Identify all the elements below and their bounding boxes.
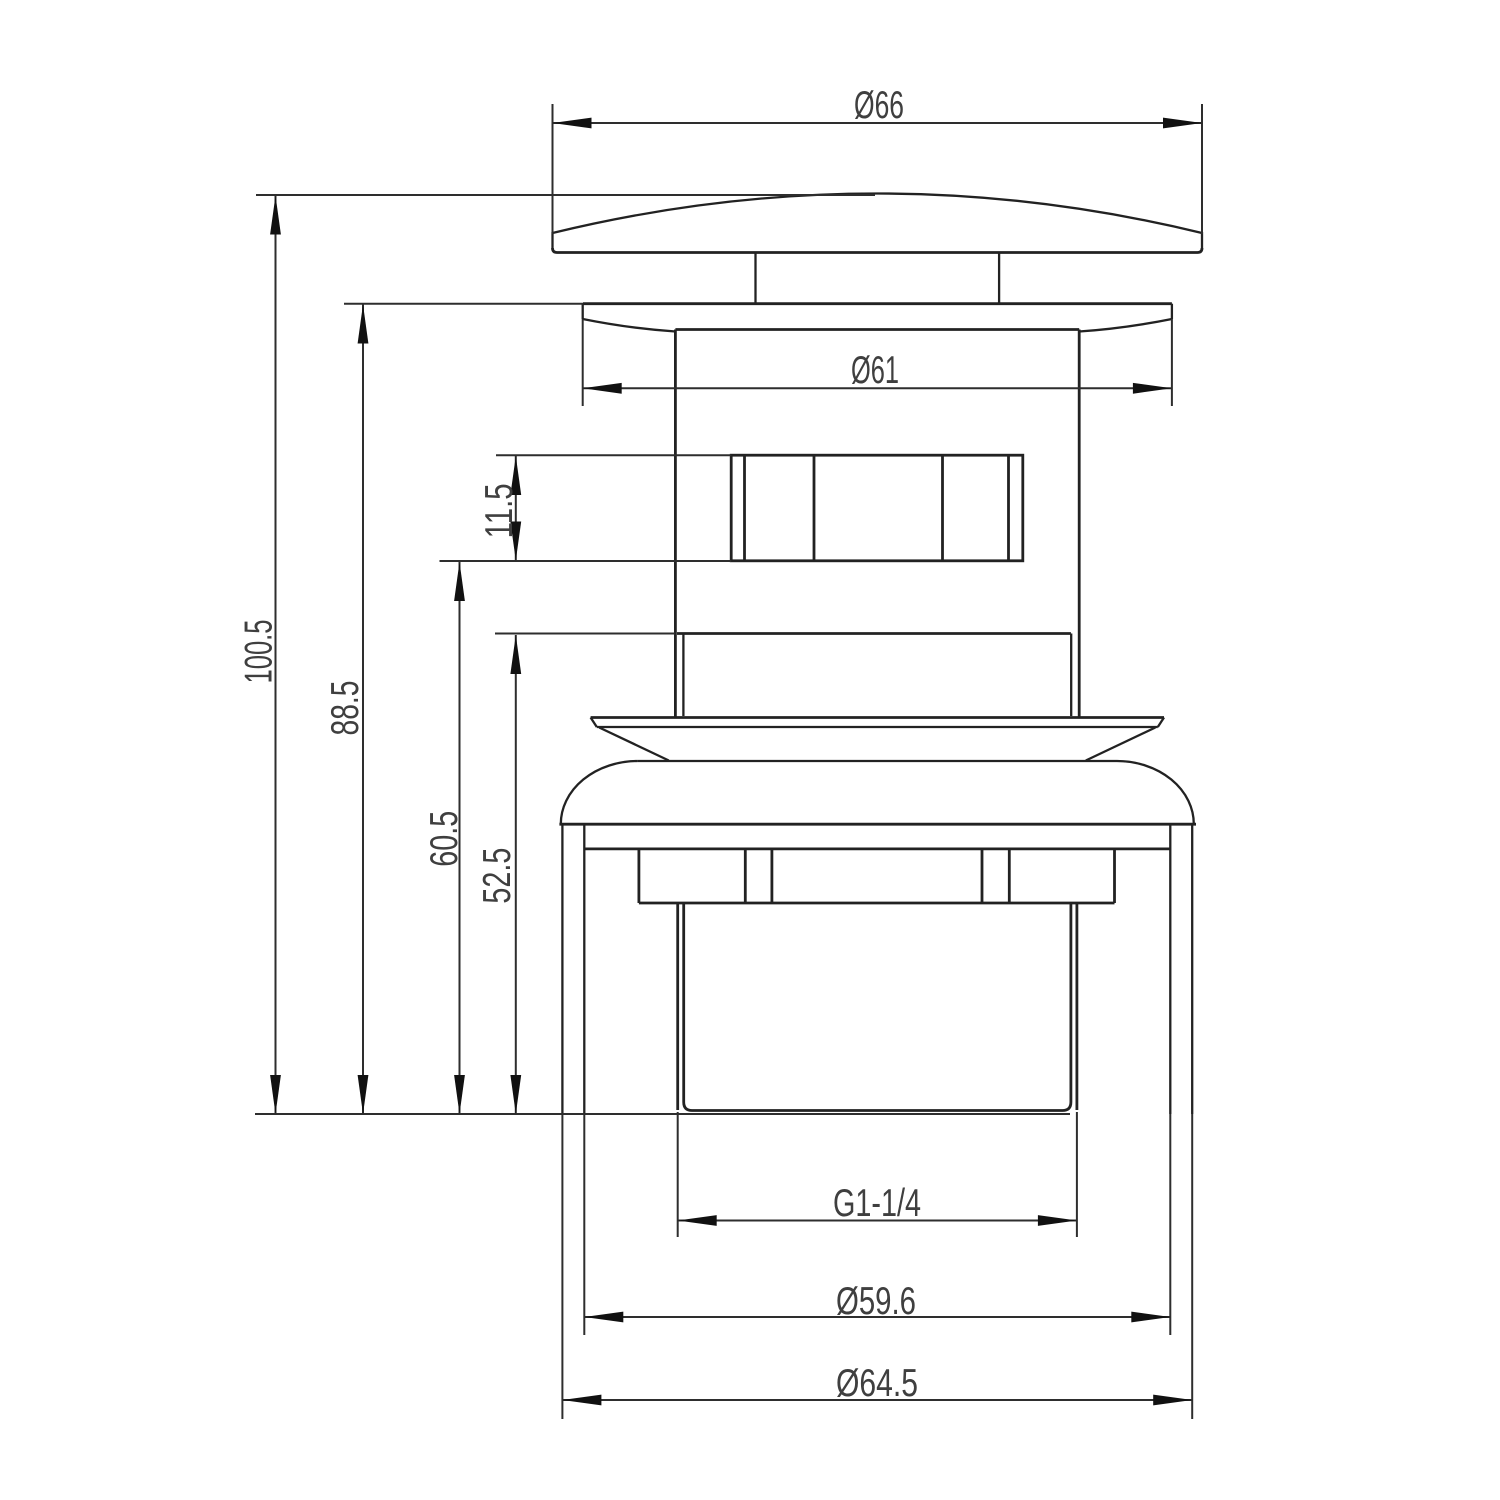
svg-text:Ø61: Ø61 (851, 349, 899, 392)
svg-text:Ø64.5: Ø64.5 (836, 1362, 918, 1405)
svg-text:88.5: 88.5 (324, 681, 367, 736)
svg-text:11.5: 11.5 (478, 483, 521, 538)
svg-text:Ø66: Ø66 (854, 84, 904, 127)
svg-text:52.5: 52.5 (476, 848, 519, 904)
svg-text:G1-1/4: G1-1/4 (833, 1182, 921, 1225)
svg-text:60.5: 60.5 (423, 811, 466, 867)
svg-text:Ø59.6: Ø59.6 (836, 1280, 916, 1323)
svg-text:100.5: 100.5 (238, 620, 281, 684)
